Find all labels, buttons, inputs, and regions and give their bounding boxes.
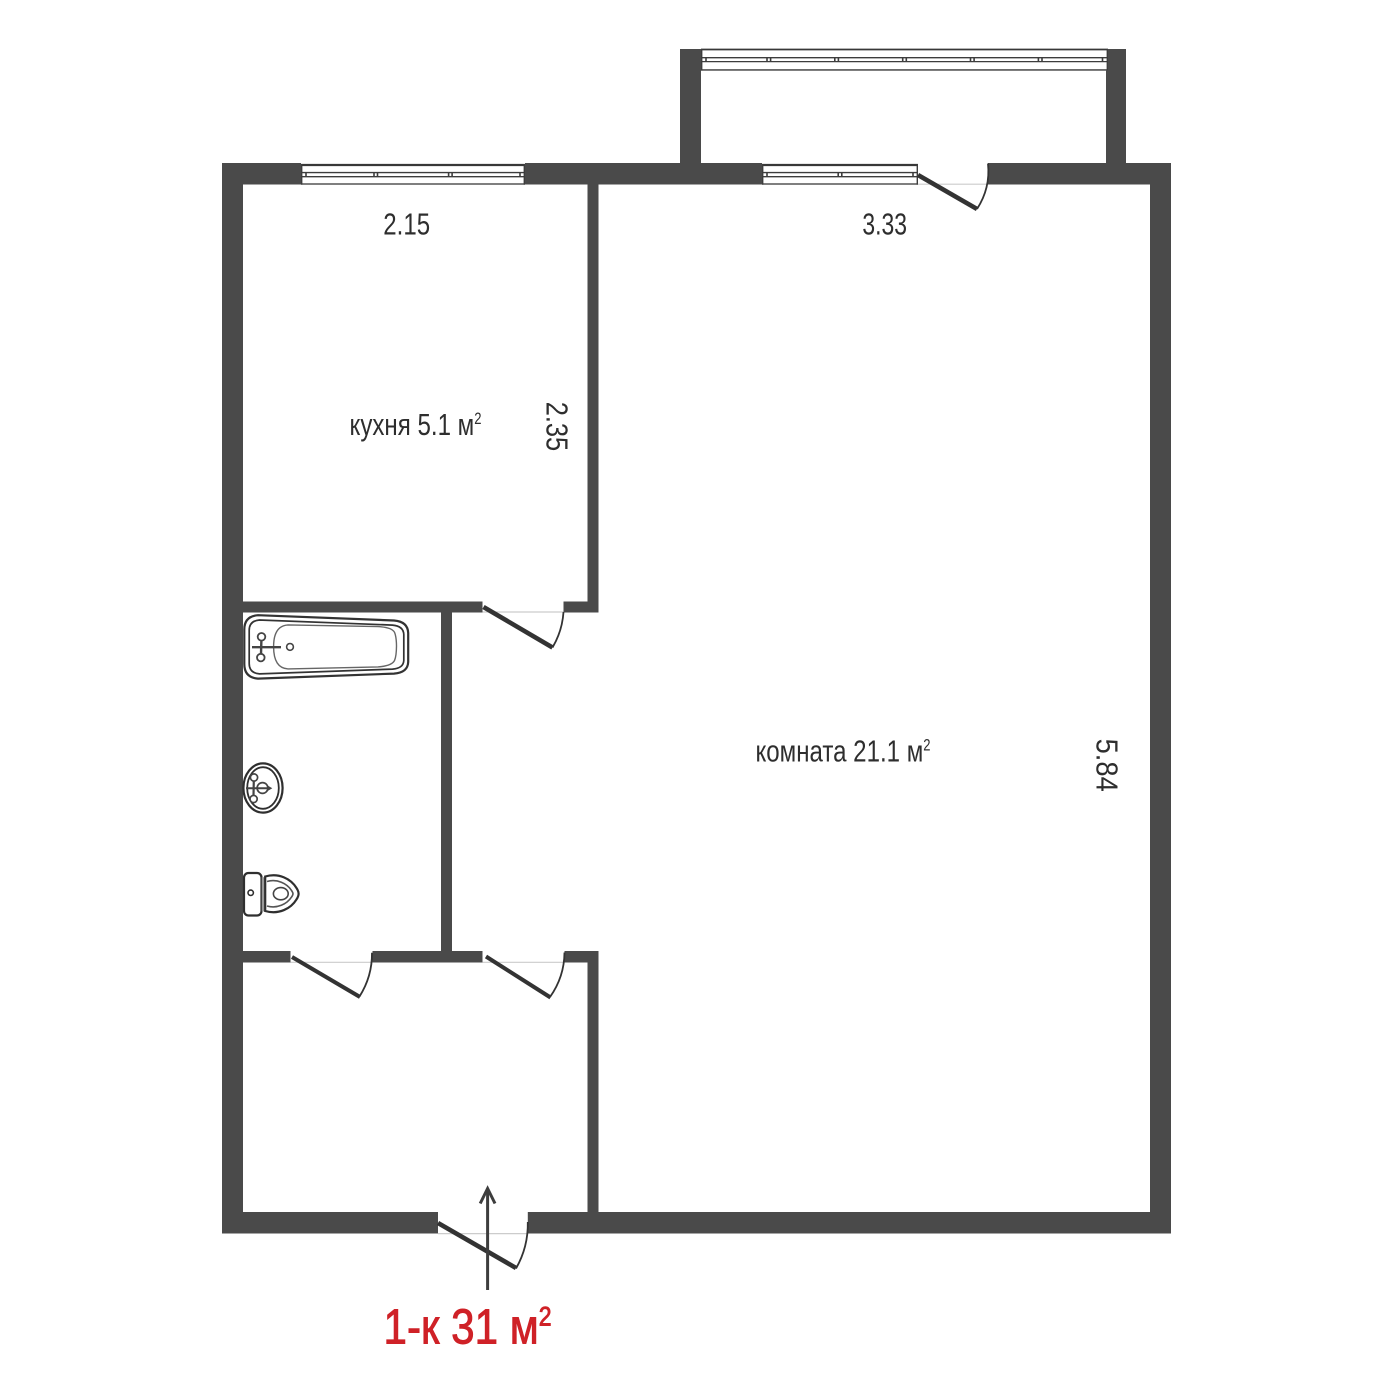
svg-text:кухня 5.1 м2: кухня 5.1 м2 — [350, 408, 482, 442]
svg-text:комната 21.1 м2: комната 21.1 м2 — [756, 735, 931, 769]
svg-text:5.84: 5.84 — [1090, 739, 1124, 792]
svg-text:1-к 31 м2: 1-к 31 м2 — [384, 1300, 552, 1355]
svg-text:2.15: 2.15 — [383, 207, 430, 241]
svg-text:2.35: 2.35 — [540, 402, 574, 452]
svg-text:3.33: 3.33 — [862, 208, 907, 242]
